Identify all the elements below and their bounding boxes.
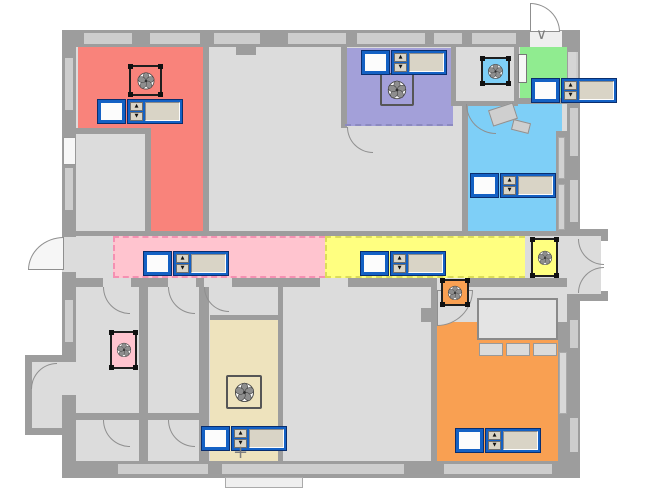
fan-mount-bracket bbox=[465, 278, 470, 283]
zone-enable-checkbox[interactable] bbox=[98, 100, 125, 123]
spin-down-button[interactable]: ▼ bbox=[564, 91, 577, 100]
window-segment bbox=[570, 320, 578, 348]
window-segment bbox=[65, 58, 73, 110]
fan-unit-purple-room[interactable] bbox=[380, 73, 414, 106]
setpoint-value-field[interactable] bbox=[409, 53, 444, 72]
zone-salmon-wing bbox=[151, 128, 203, 231]
spin-down-button[interactable]: ▼ bbox=[394, 63, 407, 72]
wall-tab-bigroom bbox=[421, 308, 433, 322]
wall-opening bbox=[204, 278, 232, 287]
window-tab-green bbox=[568, 52, 576, 80]
wall-opening bbox=[320, 278, 348, 287]
zone-enable-checkbox[interactable] bbox=[471, 174, 498, 197]
setpoint-spinner: ▲▼ bbox=[503, 176, 516, 195]
fan-mount-bracket bbox=[465, 302, 470, 307]
zone-enable-checkbox[interactable] bbox=[361, 252, 388, 275]
wall-segment bbox=[462, 101, 468, 236]
wall-segment bbox=[76, 231, 567, 236]
green-room-door-leaf bbox=[518, 54, 527, 83]
fan-mount-bracket bbox=[506, 56, 511, 61]
fan-mount-bracket bbox=[109, 330, 114, 335]
spin-down-button[interactable]: ▼ bbox=[488, 441, 501, 450]
fan-mount-bracket bbox=[128, 64, 133, 69]
hvac-control-green-room: ▲▼ bbox=[532, 79, 616, 102]
fan-mount-bracket bbox=[480, 56, 485, 61]
entry-arrow: ∨ bbox=[536, 27, 547, 42]
window-segment bbox=[472, 33, 516, 44]
setpoint-value-field[interactable] bbox=[518, 176, 553, 195]
window-segment bbox=[150, 33, 200, 44]
wall-niche-right bbox=[559, 352, 567, 414]
wall-opening bbox=[62, 237, 76, 272]
spin-up-button[interactable]: ▲ bbox=[488, 431, 501, 440]
spin-up-button[interactable]: ▲ bbox=[393, 254, 406, 263]
setpoint-box: ▲▼ bbox=[128, 100, 182, 123]
wall-segment bbox=[210, 315, 278, 320]
hvac-control-pink-corridor: ▲▼ bbox=[144, 252, 228, 275]
wall-segment bbox=[145, 128, 151, 236]
setpoint-spinner: ▲▼ bbox=[176, 254, 189, 273]
spin-up-button[interactable]: ▲ bbox=[234, 429, 247, 438]
wall-opening bbox=[168, 278, 196, 287]
fan-mount-bracket bbox=[109, 365, 114, 370]
window-segment bbox=[288, 33, 346, 44]
floor-plan-canvas: ▲▼▲▼▲▼▲▼▲▼▲▼▲▼▲▼∨+ bbox=[0, 0, 650, 500]
wall-niche-left bbox=[63, 137, 76, 165]
window-segment bbox=[84, 33, 132, 44]
setpoint-spinner: ▲▼ bbox=[564, 81, 577, 100]
window-segment bbox=[570, 418, 578, 452]
survey-mark: + bbox=[233, 444, 248, 462]
window-segment bbox=[118, 464, 208, 474]
setpoint-box: ▲▼ bbox=[391, 252, 445, 275]
hvac-control-purple-room: ▲▼ bbox=[362, 51, 446, 74]
fan-mount-bracket bbox=[506, 81, 511, 86]
fan-unit-beige-room[interactable] bbox=[226, 375, 262, 409]
fan-mount-bracket bbox=[440, 302, 445, 307]
setpoint-spinner: ▲▼ bbox=[393, 254, 406, 273]
fan-mount-bracket bbox=[133, 365, 138, 370]
setpoint-box: ▲▼ bbox=[501, 174, 555, 197]
spin-up-button[interactable]: ▲ bbox=[564, 81, 577, 90]
wall-segment bbox=[76, 413, 205, 420]
fan-mount-bracket bbox=[530, 273, 535, 278]
fan-mount-bracket bbox=[128, 92, 133, 97]
window-segment bbox=[65, 300, 73, 342]
fan-unit-yellow-zone[interactable] bbox=[531, 238, 558, 277]
chair bbox=[506, 343, 530, 356]
fan-unit-orange-room[interactable] bbox=[441, 279, 469, 306]
zone-enable-checkbox[interactable] bbox=[532, 79, 559, 102]
setpoint-box: ▲▼ bbox=[486, 429, 540, 452]
wall-tab-top bbox=[236, 47, 256, 55]
fan-mount-bracket bbox=[530, 237, 535, 242]
hvac-control-yellow-corridor: ▲▼ bbox=[361, 252, 445, 275]
spin-up-button[interactable]: ▲ bbox=[394, 53, 407, 62]
closet-shelf bbox=[558, 137, 565, 179]
wall-opening bbox=[62, 362, 76, 395]
window-segment bbox=[65, 168, 73, 210]
setpoint-box: ▲▼ bbox=[174, 252, 228, 275]
wall-segment bbox=[451, 47, 456, 105]
setpoint-spinner: ▲▼ bbox=[130, 102, 143, 121]
setpoint-box: ▲▼ bbox=[562, 79, 616, 102]
setpoint-spinner: ▲▼ bbox=[394, 53, 407, 72]
setpoint-box: ▲▼ bbox=[392, 51, 446, 74]
zone-enable-checkbox[interactable] bbox=[202, 427, 229, 450]
spin-down-button[interactable]: ▼ bbox=[503, 186, 516, 195]
window-segment bbox=[570, 180, 578, 222]
spin-down-button[interactable]: ▼ bbox=[130, 112, 143, 121]
spin-up-button[interactable]: ▲ bbox=[503, 176, 516, 185]
wall-segment bbox=[341, 47, 347, 128]
hvac-control-cyan-room: ▲▼ bbox=[471, 174, 555, 197]
spin-down-button[interactable]: ▼ bbox=[176, 264, 189, 273]
fan-mount-bracket bbox=[158, 92, 163, 97]
table bbox=[477, 298, 558, 340]
fan-unit-salmon-room[interactable] bbox=[129, 65, 162, 96]
window-segment bbox=[214, 33, 260, 44]
closet-shelf bbox=[558, 184, 565, 230]
setpoint-value-field[interactable] bbox=[145, 102, 180, 121]
fan-unit-cyan-zone[interactable] bbox=[481, 57, 510, 85]
spin-down-button[interactable]: ▼ bbox=[393, 264, 406, 273]
wall-segment bbox=[139, 287, 148, 413]
hvac-control-salmon-room: ▲▼ bbox=[98, 100, 182, 123]
fan-mount-bracket bbox=[554, 273, 559, 278]
wall-segment bbox=[203, 47, 209, 236]
hvac-control-orange-room: ▲▼ bbox=[456, 429, 540, 452]
wall-opening bbox=[103, 278, 131, 287]
wall-segment bbox=[139, 420, 148, 462]
door-exterior-west bbox=[28, 237, 64, 270]
exterior-step bbox=[225, 477, 303, 488]
setpoint-spinner: ▲▼ bbox=[488, 431, 501, 450]
window-segment bbox=[222, 464, 404, 474]
zone-enable-checkbox[interactable] bbox=[144, 252, 171, 275]
setpoint-value-field[interactable] bbox=[249, 429, 284, 448]
setpoint-value-field[interactable] bbox=[579, 81, 614, 100]
window-segment bbox=[434, 33, 462, 44]
setpoint-value-field[interactable] bbox=[191, 254, 226, 273]
fan-mount-bracket bbox=[440, 278, 445, 283]
setpoint-value-field[interactable] bbox=[408, 254, 443, 273]
fan-mount-bracket bbox=[480, 81, 485, 86]
window-segment bbox=[444, 464, 552, 474]
wall-segment bbox=[76, 128, 151, 134]
window-segment bbox=[570, 108, 578, 156]
window-segment bbox=[357, 33, 425, 44]
fan-mount-bracket bbox=[554, 237, 559, 242]
zone-enable-checkbox[interactable] bbox=[456, 429, 483, 452]
spin-up-button[interactable]: ▲ bbox=[130, 102, 143, 111]
setpoint-value-field[interactable] bbox=[503, 431, 538, 450]
fan-mount-bracket bbox=[158, 64, 163, 69]
chair bbox=[479, 343, 503, 356]
fan-mount-bracket bbox=[133, 330, 138, 335]
zone-enable-checkbox[interactable] bbox=[362, 51, 389, 74]
purple-zone-dashed-edge bbox=[345, 124, 453, 126]
fan-unit-pink-zone[interactable] bbox=[110, 331, 137, 369]
chair bbox=[533, 343, 557, 356]
spin-up-button[interactable]: ▲ bbox=[176, 254, 189, 263]
